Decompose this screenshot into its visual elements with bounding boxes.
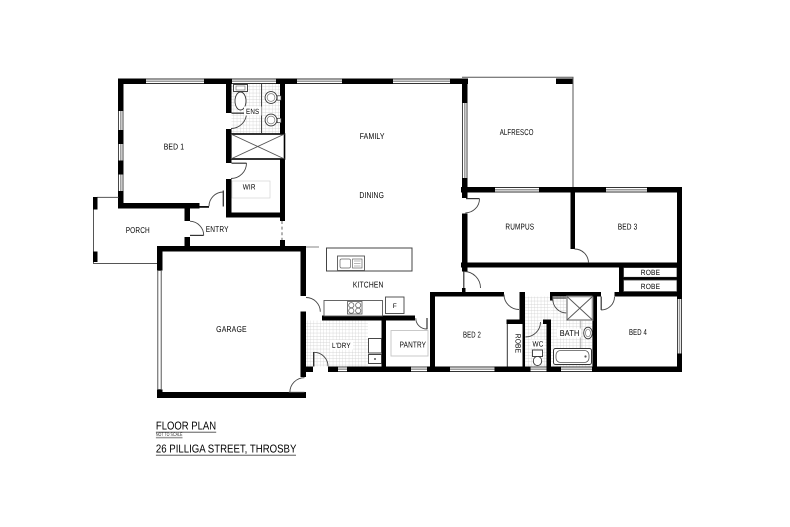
svg-text:ROBE: ROBE <box>641 268 661 277</box>
svg-text:ENS: ENS <box>246 107 259 116</box>
svg-text:FLOOR PLAN: FLOOR PLAN <box>156 421 216 433</box>
svg-text:BATH: BATH <box>560 328 580 338</box>
svg-text:ROBE: ROBE <box>514 334 523 354</box>
svg-text:L'DRY: L'DRY <box>332 341 351 350</box>
svg-text:FAMILY: FAMILY <box>360 131 385 141</box>
svg-text:WIR: WIR <box>243 183 256 192</box>
svg-text:RUMPUS: RUMPUS <box>505 222 534 232</box>
svg-text:BED 3: BED 3 <box>618 222 638 232</box>
svg-text:BED 1: BED 1 <box>164 142 185 152</box>
svg-text:PANTRY: PANTRY <box>400 340 427 350</box>
svg-text:DINING: DINING <box>359 190 384 200</box>
svg-text:PORCH: PORCH <box>126 225 150 235</box>
svg-text:F: F <box>393 303 397 310</box>
svg-text:26 PILLIGA STREET, THROSBY: 26 PILLIGA STREET, THROSBY <box>156 443 297 455</box>
svg-text:KITCHEN: KITCHEN <box>353 280 384 290</box>
svg-text:GARAGE: GARAGE <box>216 324 247 334</box>
svg-text:ENTRY: ENTRY <box>206 224 229 234</box>
svg-text:WC: WC <box>533 340 544 349</box>
svg-text:BED 2: BED 2 <box>463 330 481 340</box>
svg-text:ALFRESCO: ALFRESCO <box>500 127 534 137</box>
svg-text:ROBE: ROBE <box>641 282 661 291</box>
svg-text:BED 4: BED 4 <box>629 327 647 337</box>
